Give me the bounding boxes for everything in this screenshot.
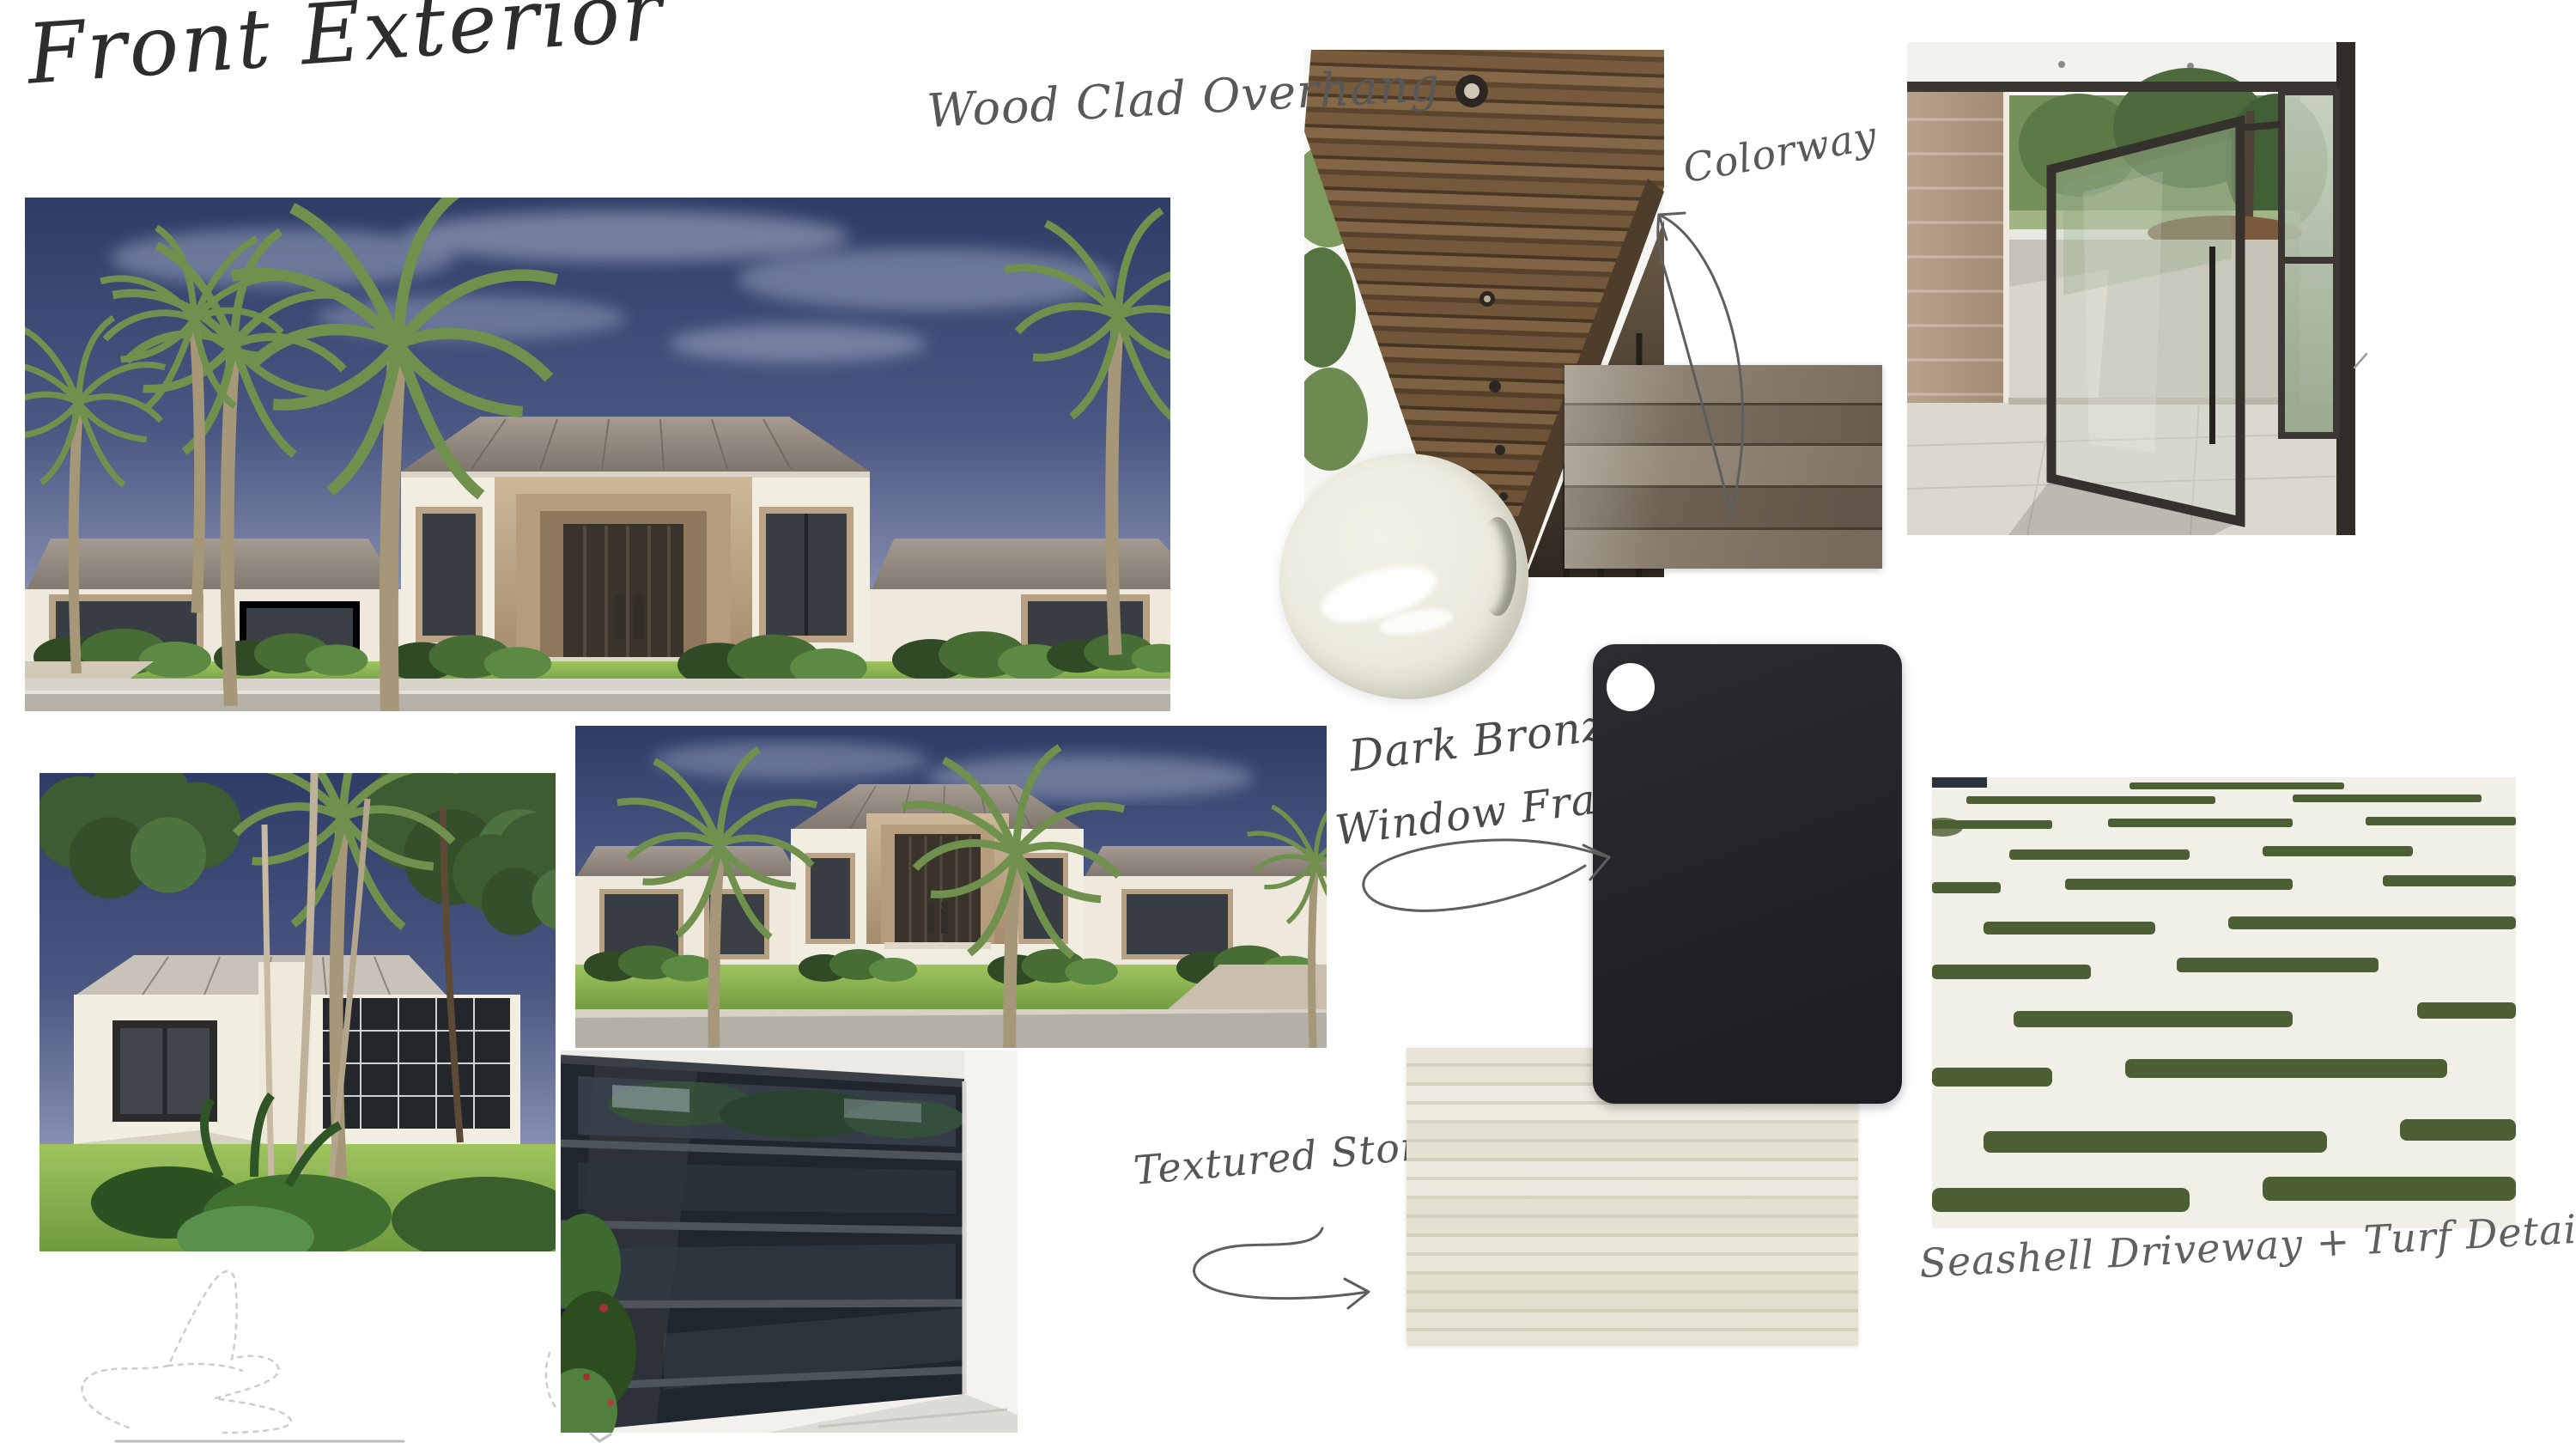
garage-door-illustration <box>561 1050 1018 1433</box>
main-front-render-illustration <box>25 198 1170 711</box>
textured-stone-arrow-icon <box>1194 1228 1369 1308</box>
seashell-driveway-illustration <box>1932 777 2516 1228</box>
seashell-driveway-photo <box>1932 777 2516 1228</box>
sketch-underline-mark <box>116 1434 611 1441</box>
annotation-dark-bronze-line1: Dark Bronze <box>1346 697 1633 782</box>
annotation-colorway: Colorway <box>1680 112 1880 192</box>
pivot-door-photo <box>1907 42 2355 535</box>
side-render-illustration <box>39 773 556 1251</box>
tick-mark <box>2354 354 2366 368</box>
dark-bronze-swatch <box>1593 644 1902 1104</box>
main-front-render-photo <box>25 198 1170 711</box>
garage-door-photo <box>561 1050 1018 1433</box>
pencil-sketch-doodle <box>82 1271 556 1433</box>
second-front-render-photo <box>575 726 1327 1048</box>
second-front-render-illustration <box>575 726 1327 1048</box>
annotation-textured-stone: Textured Stone <box>1132 1120 1453 1194</box>
swatch-hole-icon <box>1607 663 1655 711</box>
window-frames-arrow-icon <box>1364 840 1609 910</box>
side-render-photo <box>39 773 556 1251</box>
page-title: Front Exterior <box>24 0 667 103</box>
mood-board-page: Front Exterior <box>0 0 2576 1449</box>
paint-dollop-swatch <box>1279 454 1528 699</box>
wood-cladding-swatch <box>1564 365 1882 569</box>
pivot-door-illustration <box>1907 42 2355 535</box>
paint-shadow-crescent <box>1479 517 1516 615</box>
